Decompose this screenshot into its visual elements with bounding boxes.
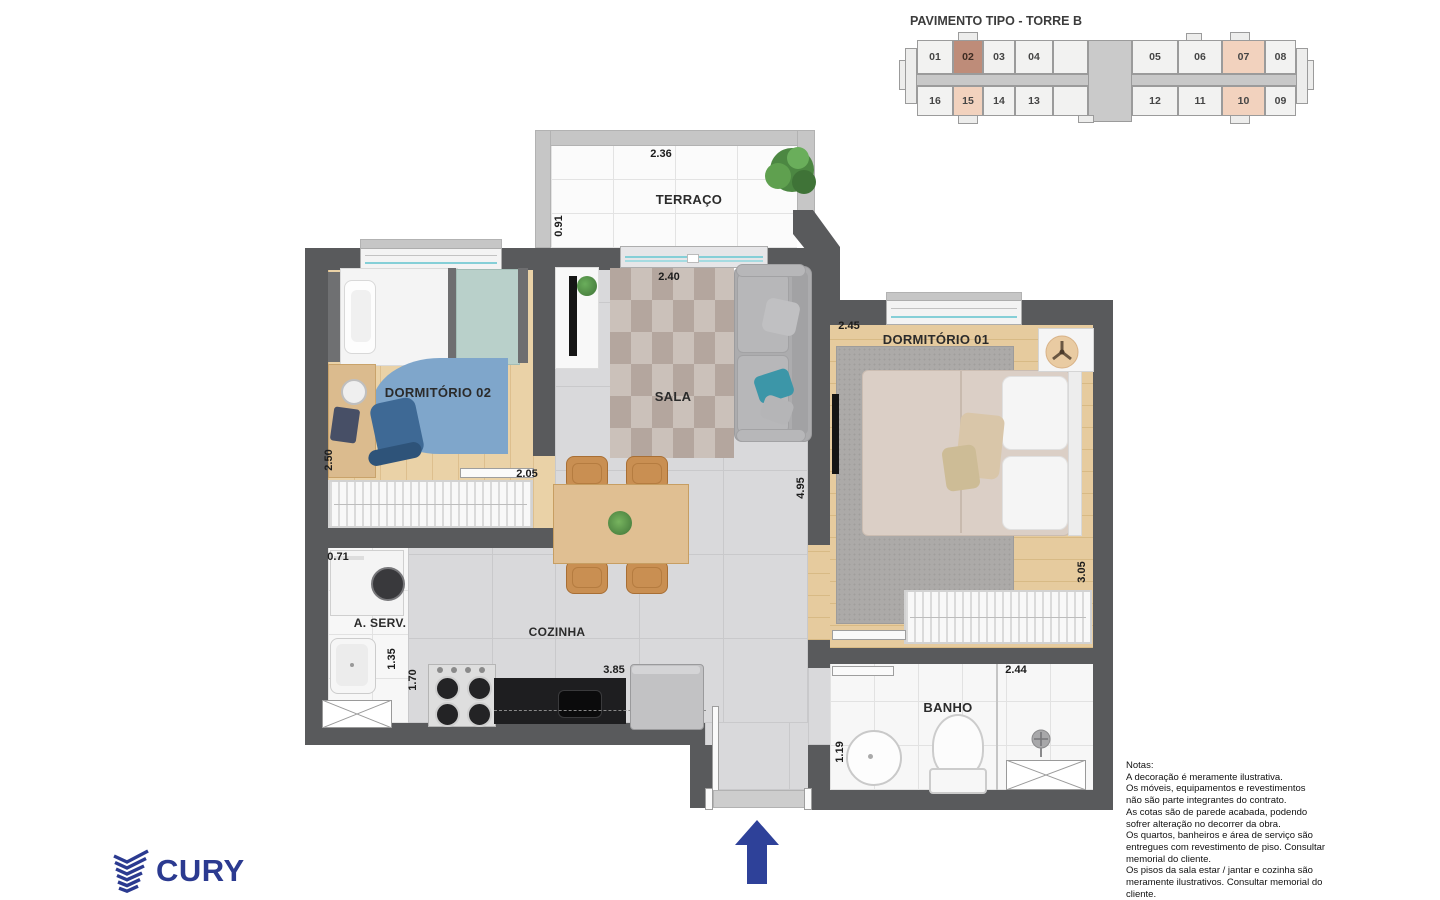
keyplan-cell-blank bbox=[1053, 40, 1088, 74]
plant-icon bbox=[758, 144, 820, 204]
notes-line: As cotas são de parede acabada, podendo bbox=[1126, 807, 1346, 819]
sofa-back bbox=[792, 271, 808, 435]
window-dormitorio01 bbox=[886, 300, 1022, 325]
wall bbox=[808, 648, 1113, 664]
notes-line: Os móveis, equipamentos e revestimentos bbox=[1126, 783, 1346, 795]
dim-banho-width: 2.44 bbox=[994, 664, 1038, 676]
notes-heading: Notas: bbox=[1126, 760, 1346, 772]
keyplan-unit-04: 04 bbox=[1015, 40, 1053, 74]
keyplan-unit-05: 05 bbox=[1132, 40, 1178, 74]
wall bbox=[305, 528, 555, 548]
plant-icon bbox=[577, 276, 597, 296]
stove-knob bbox=[437, 667, 443, 673]
stove-knob bbox=[451, 667, 457, 673]
keyplan-cap-left-nub bbox=[899, 60, 906, 90]
fridge-top bbox=[632, 666, 700, 674]
plant-icon bbox=[608, 511, 632, 535]
door-gap-floor bbox=[808, 668, 830, 745]
stove-burner bbox=[467, 676, 492, 701]
keyplan-tab bbox=[1078, 115, 1094, 123]
kitchen-sink bbox=[558, 690, 602, 718]
washer-drum bbox=[371, 567, 405, 601]
wall bbox=[1093, 300, 1113, 810]
room-label-dormitorio02: DORMITÓRIO 02 bbox=[368, 385, 508, 400]
tv-icon bbox=[832, 394, 839, 474]
notes: Notas: A decoração é meramente ilustrati… bbox=[1126, 760, 1346, 900]
keyplan-unit-02: 02 bbox=[953, 40, 983, 74]
bed-frame bbox=[448, 268, 456, 363]
desk-lamp bbox=[341, 379, 367, 405]
room-label-sala: SALA bbox=[603, 389, 743, 404]
wall bbox=[305, 248, 328, 745]
notes-line: cliente. bbox=[1126, 889, 1346, 900]
keyplan-unit-08: 08 bbox=[1265, 40, 1296, 74]
shower-head-icon bbox=[1028, 728, 1054, 758]
entry-hall-floor bbox=[705, 723, 808, 790]
tv-icon bbox=[569, 276, 577, 356]
brand-name: CURY bbox=[156, 853, 245, 889]
door-jamb bbox=[705, 788, 713, 810]
keyplan-cell-blank bbox=[1053, 86, 1088, 116]
dim-banho-depth: 1.19 bbox=[834, 730, 846, 774]
keyplan-unit-03: 03 bbox=[983, 40, 1015, 74]
dim-aserv-width: 0.71 bbox=[316, 551, 360, 563]
bed-headboard bbox=[328, 272, 340, 362]
dim-terraco-depth: 0.91 bbox=[553, 204, 565, 248]
door-leaf-dormitorio01 bbox=[832, 630, 906, 640]
pillow bbox=[1002, 456, 1068, 530]
keyplan-unit-13: 13 bbox=[1015, 86, 1053, 116]
notes-line: não são parte integrantes do contrato. bbox=[1126, 795, 1346, 807]
notes-line: entregues com revestimento de piso. Cons… bbox=[1126, 842, 1346, 854]
shaft-box bbox=[322, 700, 392, 728]
notes-line: Os pisos da sala estar / jantar e cozinh… bbox=[1126, 865, 1346, 877]
bed-frame bbox=[518, 268, 528, 363]
drain bbox=[868, 754, 873, 759]
dim-cozinha-width: 3.85 bbox=[592, 664, 636, 676]
keyplan-unit-10: 10 bbox=[1222, 86, 1265, 116]
room-label-cozinha: COZINHA bbox=[487, 625, 627, 639]
entry-door-leaf bbox=[712, 706, 719, 792]
keyplan-unit-06: 06 bbox=[1178, 40, 1222, 74]
dim-sala-depth: 4.95 bbox=[795, 466, 807, 510]
stove-burner bbox=[467, 702, 492, 727]
door-jamb bbox=[804, 788, 812, 810]
sofa-arm bbox=[736, 429, 806, 442]
keyplan-title: PAVIMENTO TIPO - TORRE B bbox=[910, 14, 1082, 28]
drain bbox=[350, 663, 354, 667]
keyplan-tab bbox=[1230, 115, 1250, 124]
bed-throw bbox=[456, 269, 520, 365]
notes-line: memorial do cliente. bbox=[1126, 854, 1346, 866]
table-lamp-icon bbox=[1044, 334, 1080, 370]
stove-burner bbox=[435, 676, 460, 701]
room-label-dormitorio01: DORMITÓRIO 01 bbox=[866, 332, 1006, 347]
dim-dormitorio02-width: 2.05 bbox=[505, 468, 549, 480]
keyplan-core bbox=[1088, 40, 1132, 122]
dim-dormitorio01-width: 2.45 bbox=[827, 320, 871, 332]
room-label-banho: BANHO bbox=[878, 700, 1018, 715]
keyplan-unit-01: 01 bbox=[917, 40, 953, 74]
stove-knob bbox=[479, 667, 485, 673]
dim-dormitorio01-depth: 3.05 bbox=[1076, 550, 1088, 594]
dim-aserv-depth: 1.35 bbox=[386, 637, 398, 681]
page: PAVIMENTO TIPO - TORRE B 01 02 03 04 05 … bbox=[0, 0, 1440, 900]
shower-partition bbox=[996, 664, 998, 790]
keyplan-unit-16: 16 bbox=[917, 86, 953, 116]
door-gap-floor bbox=[533, 456, 555, 528]
window-dormitorio02 bbox=[360, 248, 502, 270]
keyplan-cap-left bbox=[905, 48, 917, 104]
dim-sala-width: 2.40 bbox=[647, 271, 691, 283]
wardrobe bbox=[904, 590, 1092, 644]
keyplan-cap-right-nub bbox=[1307, 60, 1314, 90]
dim-cozinha-depth: 1.70 bbox=[407, 658, 419, 702]
room-label-aserv: A. SERV. bbox=[310, 616, 450, 630]
door-gap-floor bbox=[808, 545, 830, 640]
notes-line: A decoração é meramente ilustrativa. bbox=[1126, 772, 1346, 784]
dim-terraco-width: 2.36 bbox=[639, 148, 683, 160]
stove-burner bbox=[435, 702, 460, 727]
wardrobe bbox=[328, 480, 533, 528]
room-label-terraco: TERRAÇO bbox=[619, 192, 759, 207]
sofa-arm bbox=[736, 264, 806, 277]
keyplan-unit-09: 09 bbox=[1265, 86, 1296, 116]
toilet-tank bbox=[929, 768, 987, 794]
cury-chevrons-icon bbox=[110, 848, 152, 894]
notes-line: meramente ilustrativos. Consultar memori… bbox=[1126, 877, 1346, 889]
keyplan-unit-15: 15 bbox=[953, 86, 983, 116]
keyplan-unit-11: 11 bbox=[1178, 86, 1222, 116]
sofa-pillow bbox=[761, 297, 801, 337]
notes-line: Os quartos, banheiros e área de serviço … bbox=[1126, 830, 1346, 842]
wall bbox=[533, 270, 555, 456]
keyplan-unit-07: 07 bbox=[1222, 40, 1265, 74]
pillow bbox=[351, 290, 371, 342]
keyplan-unit-14: 14 bbox=[983, 86, 1015, 116]
pillow bbox=[1002, 376, 1068, 450]
notes-line: sofrer alteração no decorrer da obra. bbox=[1126, 819, 1346, 831]
keyplan-unit-12: 12 bbox=[1132, 86, 1178, 116]
pillow-accent bbox=[941, 444, 981, 492]
bed-headboard bbox=[1068, 370, 1082, 536]
shaft-box bbox=[1006, 760, 1086, 790]
entrance-arrow-icon bbox=[735, 820, 779, 884]
dim-dormitorio02-depth: 2.50 bbox=[323, 438, 335, 482]
brand-logo: CURY bbox=[110, 848, 245, 894]
stove-knob bbox=[465, 667, 471, 673]
terrace-parapet bbox=[535, 130, 551, 248]
door-leaf-banho bbox=[832, 666, 894, 676]
rug-sala bbox=[610, 268, 734, 458]
entry-threshold bbox=[713, 790, 805, 808]
keyplan-tab bbox=[958, 115, 978, 124]
bathroom-sink bbox=[846, 730, 902, 786]
chair-dining bbox=[566, 560, 608, 594]
chair-dining bbox=[626, 560, 668, 594]
wall bbox=[808, 745, 830, 790]
